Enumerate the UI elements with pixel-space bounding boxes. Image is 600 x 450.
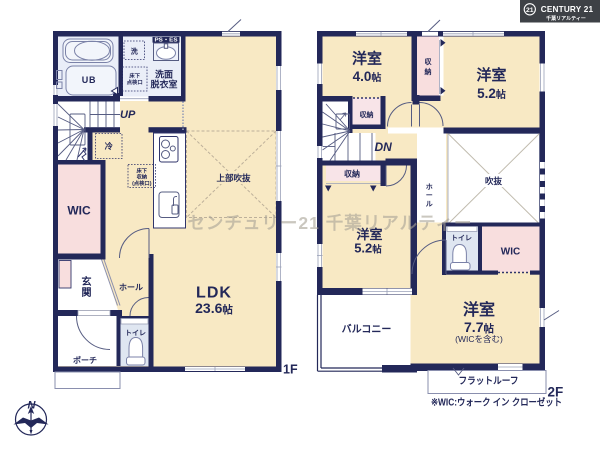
- svg-text:ル: ル: [426, 200, 433, 208]
- svg-text:(WICを含む): (WICを含む): [455, 334, 503, 344]
- svg-text:冷: 冷: [105, 141, 113, 151]
- svg-text:UB: UB: [82, 75, 97, 85]
- svg-text:CENTURY 21: CENTURY 21: [541, 5, 594, 14]
- svg-text:(点検口): (点検口): [132, 179, 152, 187]
- svg-text:ポーチ: ポーチ: [73, 355, 97, 365]
- svg-text:洗: 洗: [131, 47, 138, 56]
- svg-text:収: 収: [425, 57, 433, 66]
- svg-text:LDK: LDK: [196, 285, 232, 302]
- svg-text:洗面: 洗面: [155, 69, 173, 80]
- svg-text:点検口: 点検口: [127, 78, 143, 86]
- svg-text:関: 関: [82, 287, 92, 299]
- svg-text:フラットルーフ: フラットルーフ: [459, 376, 519, 387]
- svg-text:千葉リアルティー: 千葉リアルティー: [546, 15, 586, 22]
- svg-text:バルコニー: バルコニー: [342, 324, 392, 336]
- svg-text:収納: 収納: [136, 173, 147, 181]
- svg-text:N: N: [28, 400, 37, 412]
- svg-text:トイレ: トイレ: [451, 234, 472, 242]
- svg-text:納: 納: [425, 67, 432, 76]
- svg-text:センチュリー21 千葉リアルティー: センチュリー21 千葉リアルティー: [187, 213, 472, 233]
- svg-text:収納: 収納: [360, 110, 374, 119]
- svg-text:脱衣室: 脱衣室: [150, 79, 177, 90]
- svg-text:上部吹抜: 上部吹抜: [216, 173, 251, 183]
- svg-text:吹抜: 吹抜: [485, 176, 503, 186]
- svg-text:UP: UP: [120, 109, 136, 121]
- svg-text:1F: 1F: [283, 363, 298, 377]
- svg-text:PS・ES: PS・ES: [155, 38, 179, 44]
- svg-text:洋室: 洋室: [463, 300, 495, 319]
- svg-text:※WIC:ウォーク イン クローゼット: ※WIC:ウォーク イン クローゼット: [431, 396, 562, 409]
- svg-text:ホ: ホ: [426, 183, 433, 191]
- svg-text:玄: 玄: [82, 275, 92, 288]
- svg-text:トイレ: トイレ: [125, 329, 146, 337]
- svg-text:21: 21: [526, 7, 534, 14]
- svg-text:床下: 床下: [136, 167, 147, 175]
- svg-text:洋室: 洋室: [476, 66, 506, 84]
- svg-text:洋室: 洋室: [352, 50, 382, 68]
- svg-text:ホール: ホール: [119, 283, 143, 292]
- svg-text:WIC: WIC: [501, 247, 520, 258]
- svg-text:WIC: WIC: [67, 204, 91, 218]
- svg-text:床下: 床下: [129, 72, 140, 80]
- svg-text:ー: ー: [426, 193, 433, 200]
- svg-text:DN: DN: [375, 140, 393, 154]
- svg-text:収納: 収納: [344, 169, 360, 179]
